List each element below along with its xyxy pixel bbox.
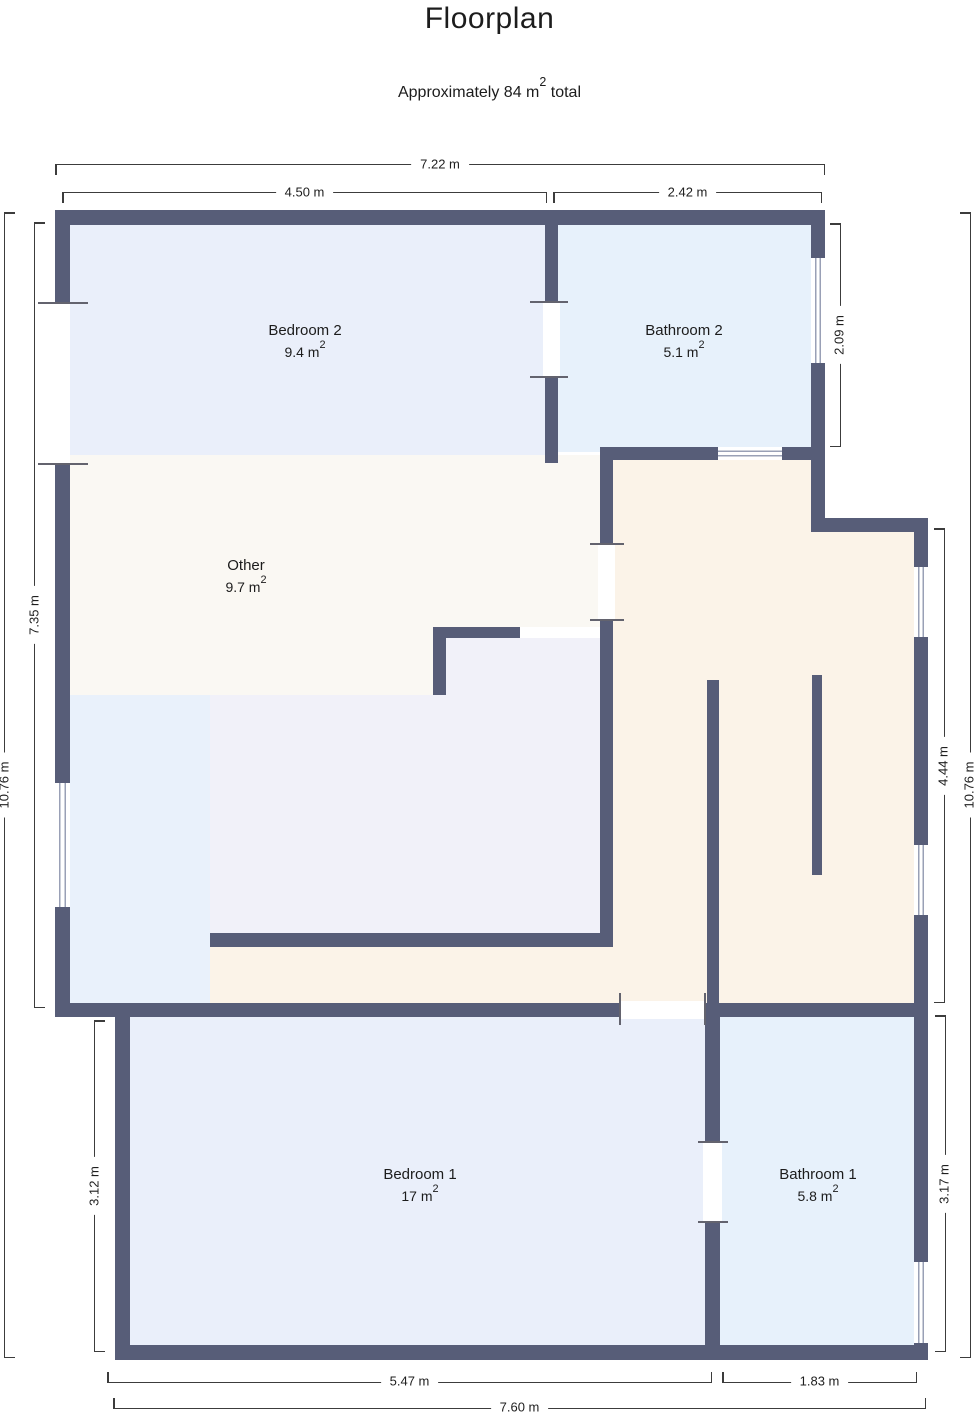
page-title: Floorplan bbox=[0, 2, 979, 36]
dimension-label: 2.09 m bbox=[832, 306, 847, 364]
door-tick bbox=[590, 543, 624, 545]
window-bathroom1-right bbox=[914, 1262, 928, 1343]
dimension-top-total: 7.22 m bbox=[55, 164, 825, 175]
opening-interior-room bbox=[520, 627, 600, 638]
room-nook-fill bbox=[70, 695, 210, 1005]
room-label-bedroom1: Bedroom 1 17 m2 bbox=[383, 1166, 456, 1204]
room-other-fill-b bbox=[70, 635, 440, 695]
room-label-bathroom1: Bathroom 1 5.8 m2 bbox=[779, 1166, 857, 1204]
door-tick bbox=[590, 619, 624, 621]
dimension-right-hallway: 4.44 m bbox=[934, 528, 945, 1003]
window-bathroom2-right bbox=[811, 258, 825, 363]
door-tick bbox=[38, 463, 88, 465]
wall-left-upper-c bbox=[55, 907, 70, 1017]
dimension-left-upper: 7.35 m bbox=[34, 222, 45, 1008]
room-other-fill-a bbox=[70, 455, 605, 635]
dimension-label: 3.17 m bbox=[937, 1155, 952, 1213]
wall-interior-stub bbox=[433, 627, 446, 695]
dimension-label: 2.42 m bbox=[659, 185, 717, 200]
dimension-right-bathroom1: 3.17 m bbox=[935, 1015, 946, 1352]
window-left-wall bbox=[55, 783, 70, 907]
subtitle-text: Approximately 84 m bbox=[398, 84, 539, 101]
dimension-label: 10.76 m bbox=[0, 753, 12, 818]
wall-hall-free-stub bbox=[812, 675, 822, 875]
wall-step bbox=[811, 518, 928, 532]
dimension-label: 1.83 m bbox=[791, 1374, 849, 1389]
wall-hall-divider-stub bbox=[707, 680, 719, 1003]
subtitle-suffix: total bbox=[546, 84, 581, 101]
wall-bed1-bath1-b bbox=[705, 1222, 720, 1345]
wall-other-hall-b bbox=[600, 620, 613, 947]
wall-hall-bedroom1-b bbox=[705, 1003, 928, 1017]
room-name: Bathroom 1 bbox=[779, 1166, 857, 1183]
room-area: 17 m2 bbox=[383, 1188, 456, 1204]
dimension-top-bedroom2: 4.50 m bbox=[62, 192, 547, 203]
room-hallway-fill-c bbox=[210, 945, 610, 1005]
door-tick bbox=[38, 302, 88, 304]
dimension-label: 7.60 m bbox=[491, 1400, 549, 1415]
dimension-right-bathroom2: 2.09 m bbox=[830, 223, 841, 447]
door-left-wall bbox=[55, 303, 70, 465]
subtitle-superscript: 2 bbox=[539, 75, 546, 89]
wall-bath2-bottom-b bbox=[782, 447, 825, 460]
subtitle: Approximately 84 m2 total bbox=[0, 84, 979, 102]
wall-left-upper-b bbox=[55, 465, 70, 783]
wall-top bbox=[55, 210, 825, 225]
wall-right-upper-a bbox=[811, 210, 825, 258]
wall-bath2-bottom-a bbox=[600, 447, 718, 460]
wall-bed2-bath2-b bbox=[545, 377, 558, 463]
door-tick bbox=[530, 376, 568, 378]
wall-right-main-c bbox=[914, 915, 928, 1262]
dimension-label: 4.50 m bbox=[276, 185, 334, 200]
wall-bottom bbox=[115, 1345, 928, 1360]
room-interior-fill-b bbox=[210, 695, 608, 938]
room-area: 9.4 m2 bbox=[268, 344, 341, 360]
dimension-bottom-total: 7.60 m bbox=[113, 1398, 926, 1409]
door-other-hallway bbox=[598, 545, 615, 620]
dimension-label: 4.44 m bbox=[936, 737, 951, 795]
window-right-lower bbox=[914, 845, 928, 915]
room-area: 5.8 m2 bbox=[779, 1188, 857, 1204]
door-tick bbox=[619, 993, 621, 1025]
room-area: 5.1 m2 bbox=[645, 344, 723, 360]
wall-interior-top bbox=[433, 627, 520, 638]
window-right-upper bbox=[914, 567, 928, 637]
dimension-top-bathroom2: 2.42 m bbox=[553, 192, 822, 203]
dimension-label: 7.35 m bbox=[27, 586, 42, 644]
room-name: Bathroom 2 bbox=[645, 322, 723, 339]
wall-bed2-bath2-a bbox=[545, 210, 558, 303]
window-bathroom2-bottom bbox=[718, 447, 782, 460]
dimension-label: 10.76 m bbox=[962, 753, 977, 818]
room-hallway-fill-b bbox=[605, 518, 917, 1008]
dimension-label: 7.22 m bbox=[411, 157, 469, 172]
dimension-bottom-bathroom1: 1.83 m bbox=[722, 1372, 917, 1383]
dimension-label: 5.47 m bbox=[381, 1374, 439, 1389]
wall-interior-bottom bbox=[210, 933, 613, 947]
wall-right-main-b bbox=[914, 637, 928, 845]
wall-left-upper-a bbox=[55, 210, 70, 305]
room-name: Other bbox=[225, 557, 266, 574]
door-tick bbox=[704, 993, 706, 1025]
room-label-bathroom2: Bathroom 2 5.1 m2 bbox=[645, 322, 723, 360]
wall-other-hall-a bbox=[600, 455, 613, 545]
wall-bed1-bath1-a bbox=[705, 1017, 720, 1143]
door-bedroom2 bbox=[543, 303, 560, 377]
room-interior-fill-a bbox=[440, 634, 605, 698]
dimension-label: 3.12 m bbox=[87, 1157, 102, 1215]
room-label-other: Other 9.7 m2 bbox=[225, 557, 266, 595]
room-hallway-fill-a bbox=[605, 458, 815, 520]
wall-right-main-a bbox=[914, 518, 928, 567]
room-area: 9.7 m2 bbox=[225, 579, 266, 595]
dimension-right-total: 10.76 m bbox=[960, 212, 971, 1358]
door-hall-bedroom1 bbox=[620, 1001, 705, 1019]
door-tick bbox=[698, 1221, 728, 1223]
room-label-bedroom2: Bedroom 2 9.4 m2 bbox=[268, 322, 341, 360]
room-name: Bedroom 2 bbox=[268, 322, 341, 339]
wall-hall-bedroom1-a bbox=[55, 1003, 620, 1017]
door-bathroom1 bbox=[703, 1143, 722, 1222]
door-tick bbox=[698, 1141, 728, 1143]
dimension-left-bedroom1: 3.12 m bbox=[94, 1020, 105, 1352]
dimension-left-total: 10.76 m bbox=[4, 212, 15, 1358]
room-name: Bedroom 1 bbox=[383, 1166, 456, 1183]
floorplan-canvas: Floorplan Approximately 84 m2 total bbox=[0, 0, 979, 1416]
wall-bedroom1-left bbox=[115, 1010, 130, 1360]
door-tick bbox=[530, 301, 568, 303]
dimension-bottom-bedroom1: 5.47 m bbox=[107, 1372, 712, 1383]
